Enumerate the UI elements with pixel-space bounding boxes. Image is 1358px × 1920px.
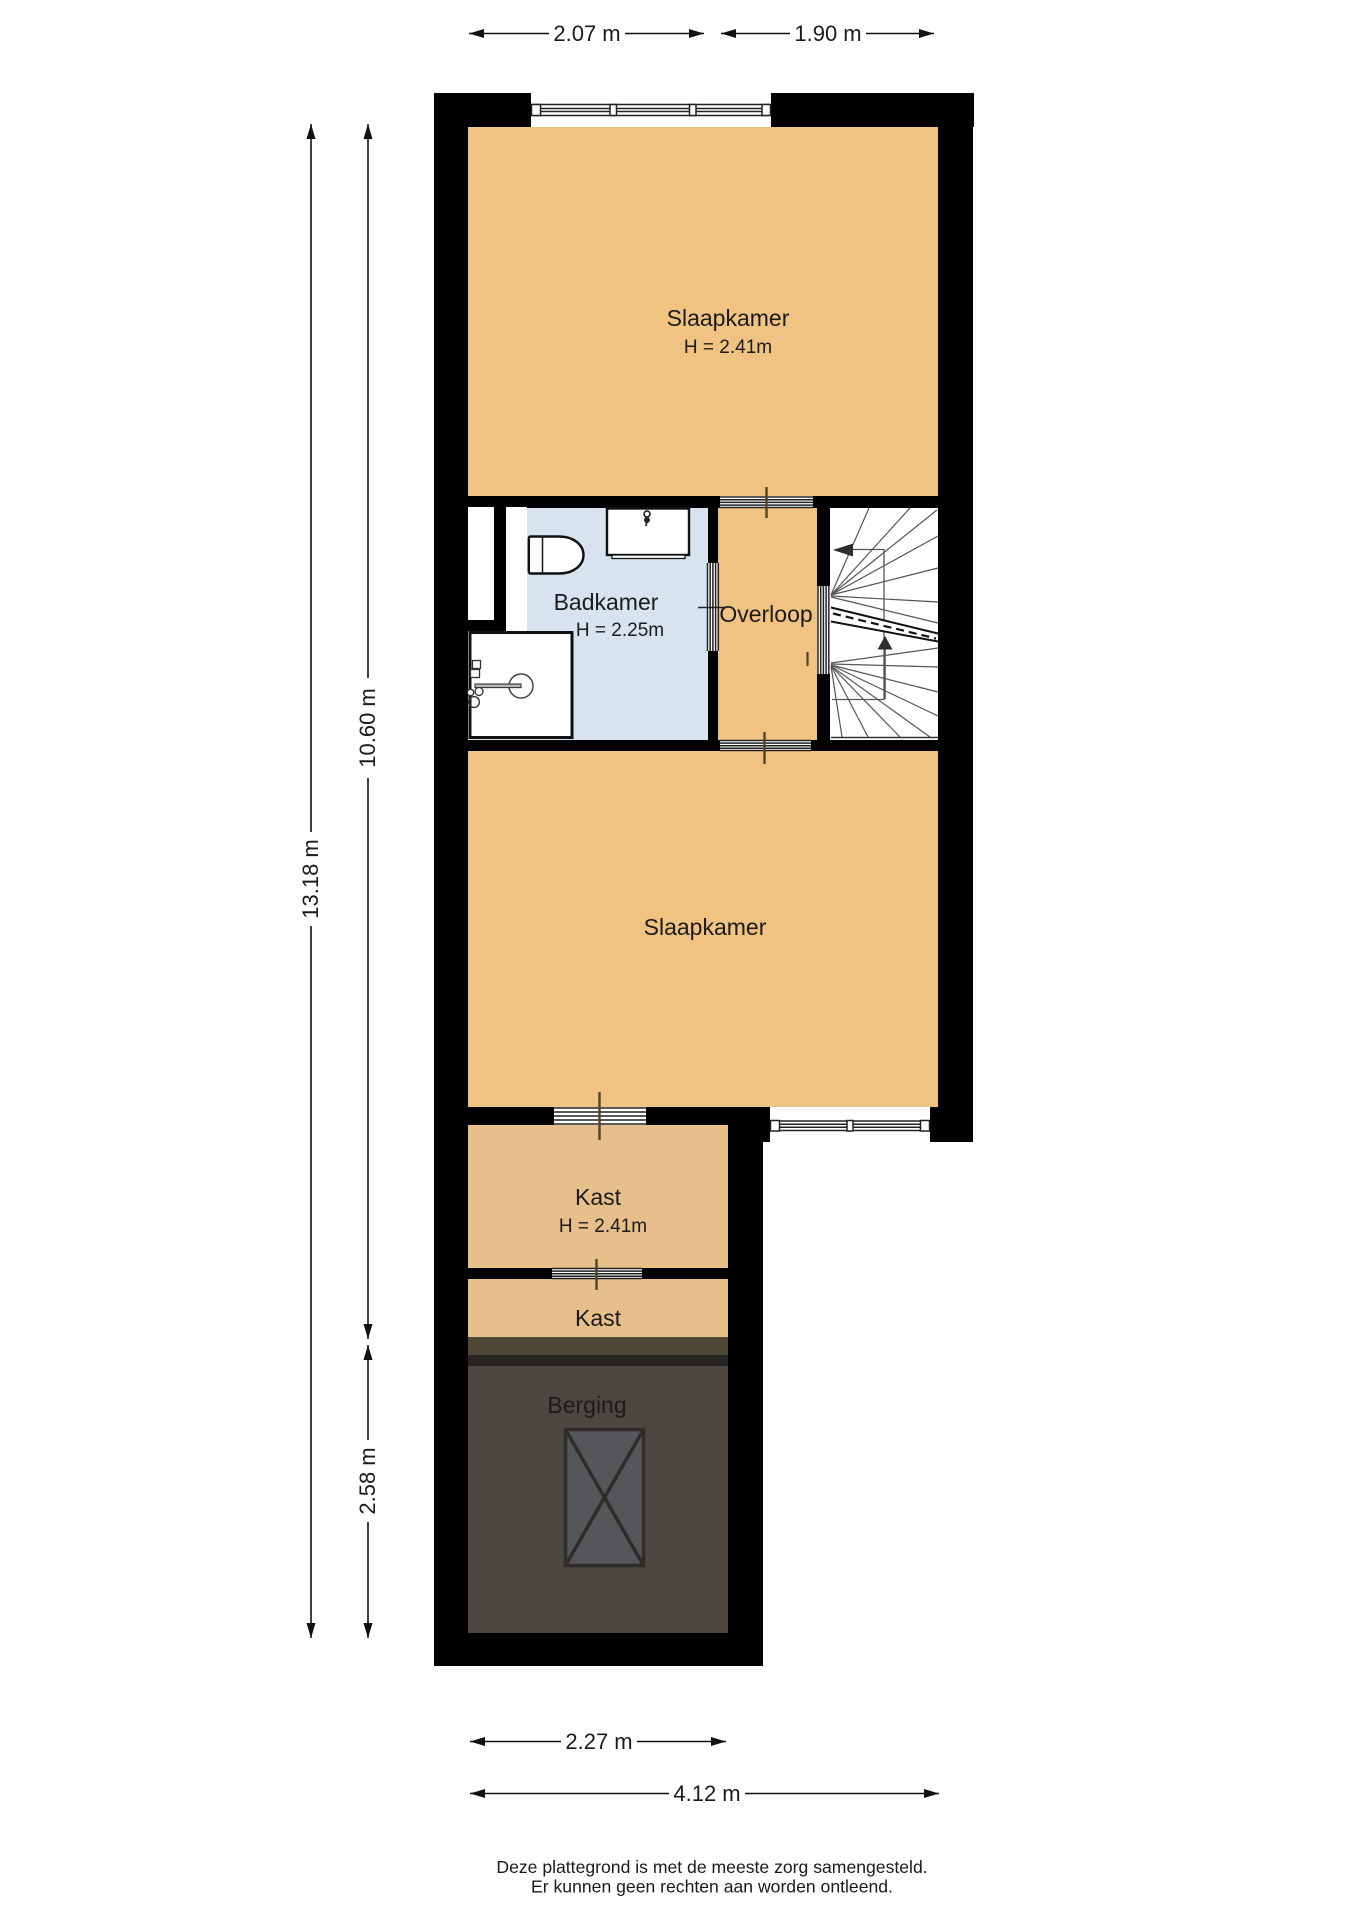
svg-text:Slaapkamer: Slaapkamer <box>667 305 790 331</box>
svg-text:H = 2.25m: H = 2.25m <box>576 620 664 641</box>
svg-text:13.18 m: 13.18 m <box>298 839 323 919</box>
svg-text:2.58 m: 2.58 m <box>355 1447 380 1514</box>
svg-text:H = 2.41m: H = 2.41m <box>684 337 772 358</box>
svg-text:2.07 m: 2.07 m <box>553 21 620 46</box>
svg-text:Slaapkamer: Slaapkamer <box>644 914 767 940</box>
svg-text:Badkamer: Badkamer <box>554 589 659 615</box>
svg-text:Overloop: Overloop <box>719 601 812 627</box>
svg-text:1.90 m: 1.90 m <box>794 21 861 46</box>
svg-text:Berging: Berging <box>547 1392 626 1418</box>
svg-text:10.60 m: 10.60 m <box>355 688 380 768</box>
svg-text:Er kunnen geen rechten aan wor: Er kunnen geen rechten aan worden ontlee… <box>531 1877 893 1897</box>
svg-text:Kast: Kast <box>575 1305 622 1331</box>
svg-text:4.12 m: 4.12 m <box>673 1781 740 1806</box>
svg-text:2.27 m: 2.27 m <box>565 1729 632 1754</box>
svg-text:H = 2.41m: H = 2.41m <box>559 1216 647 1237</box>
svg-text:Deze plattegrond is met de mee: Deze plattegrond is met de meeste zorg s… <box>496 1857 927 1877</box>
svg-text:Kast: Kast <box>575 1184 622 1210</box>
